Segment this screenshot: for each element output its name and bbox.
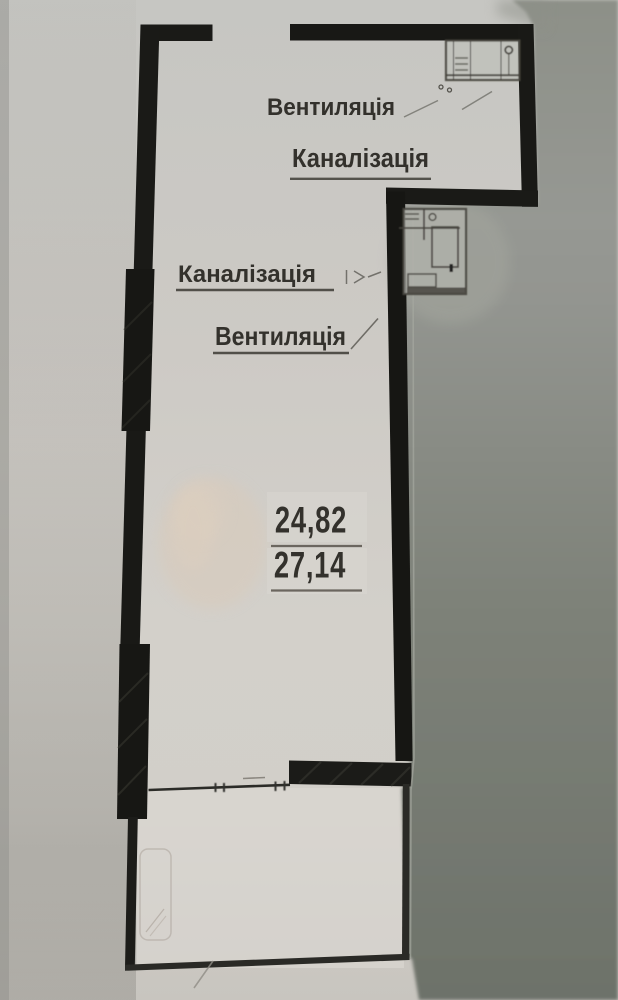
svg-text:Каналізація: Каналізація bbox=[292, 145, 429, 173]
svg-text:Каналізація: Каналізація bbox=[178, 261, 316, 288]
svg-text:Вентиляція: Вентиляція bbox=[215, 321, 346, 351]
svg-text:24,82: 24,82 bbox=[275, 500, 347, 541]
svg-text:27,14: 27,14 bbox=[274, 545, 346, 586]
svg-text:Вентиляція: Вентиляція bbox=[267, 94, 395, 121]
